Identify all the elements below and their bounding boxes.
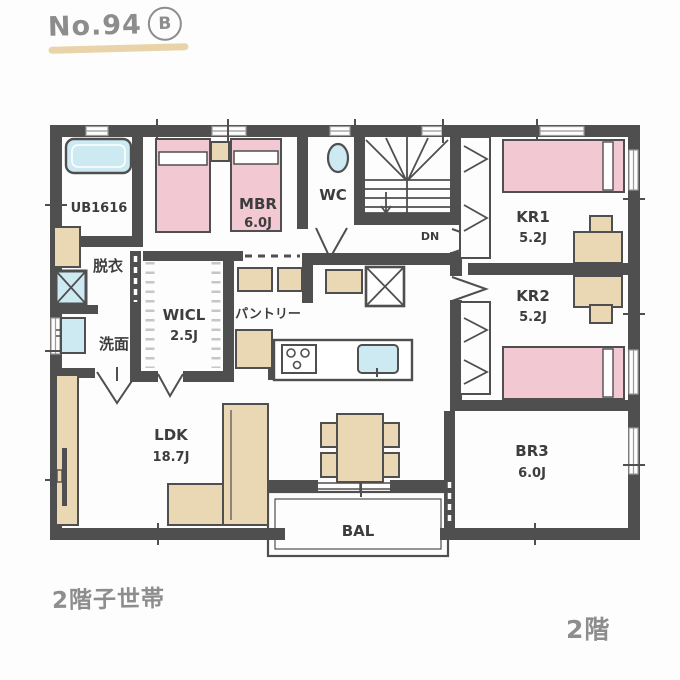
closet-kr1 — [460, 137, 490, 258]
mbr-bed-1 — [156, 139, 210, 232]
stove-icon — [282, 345, 316, 373]
dining-chair — [321, 453, 337, 477]
size-wicl: 2.5J — [170, 329, 198, 344]
tv-board — [56, 375, 78, 525]
tv-icon — [62, 448, 67, 506]
size-mbr: 6.0J — [244, 216, 272, 231]
size-kr2: 5.2J — [519, 310, 547, 325]
size-ldk: 18.7J — [153, 450, 190, 465]
label-ldk: LDK — [154, 426, 189, 444]
mbr-nightstand — [211, 142, 229, 161]
kitchen-counter — [274, 340, 412, 380]
label-wc: WC — [319, 186, 347, 204]
window — [629, 428, 638, 474]
size-br3: 6.0J — [518, 466, 546, 481]
window — [540, 127, 584, 136]
label-pantry: パントリー — [235, 307, 301, 322]
label-kr2: KR2 — [516, 287, 550, 305]
label-wicl: WICL — [163, 306, 206, 324]
kr2-bed — [503, 347, 624, 399]
label-kr1: KR1 — [516, 208, 550, 226]
dining-chair — [321, 423, 337, 447]
window — [86, 127, 108, 136]
washing-machine-icon — [56, 271, 86, 304]
window — [629, 350, 638, 394]
size-kr1: 5.2J — [519, 231, 547, 246]
floor-plan-page: No.94 B — [0, 0, 680, 680]
window — [629, 150, 638, 190]
kr1-bed — [503, 140, 624, 192]
window — [330, 127, 350, 136]
dining-chair — [383, 453, 399, 477]
label-datsui: 脱衣 — [93, 257, 123, 275]
toilet-icon — [328, 144, 348, 172]
label-br3: BR3 — [515, 442, 548, 460]
label-stairs-dn: DN — [421, 230, 439, 243]
caption-floor-number: 2階 — [566, 610, 610, 646]
label-senmen: 洗面 — [99, 335, 129, 353]
dining-table — [337, 414, 383, 482]
dining-chair — [383, 423, 399, 447]
label-mbr: MBR — [239, 195, 277, 213]
caption-floor-household: 2階子世帯 — [52, 579, 166, 615]
label-bal: BAL — [342, 522, 375, 540]
closet-kr2 — [460, 302, 490, 394]
vanity-sink-icon — [56, 318, 85, 353]
window — [422, 127, 442, 136]
kitchen-sink-icon — [358, 345, 398, 377]
refrigerator-icon — [366, 267, 404, 306]
floor-plan-drawing: UB1616 脱衣 洗面 MBR 6.0J WC DN WICL 2.5J パン… — [0, 0, 680, 680]
label-ub: UB1616 — [71, 201, 128, 216]
linen-cabinet — [54, 227, 80, 267]
bathtub-icon — [66, 139, 131, 173]
